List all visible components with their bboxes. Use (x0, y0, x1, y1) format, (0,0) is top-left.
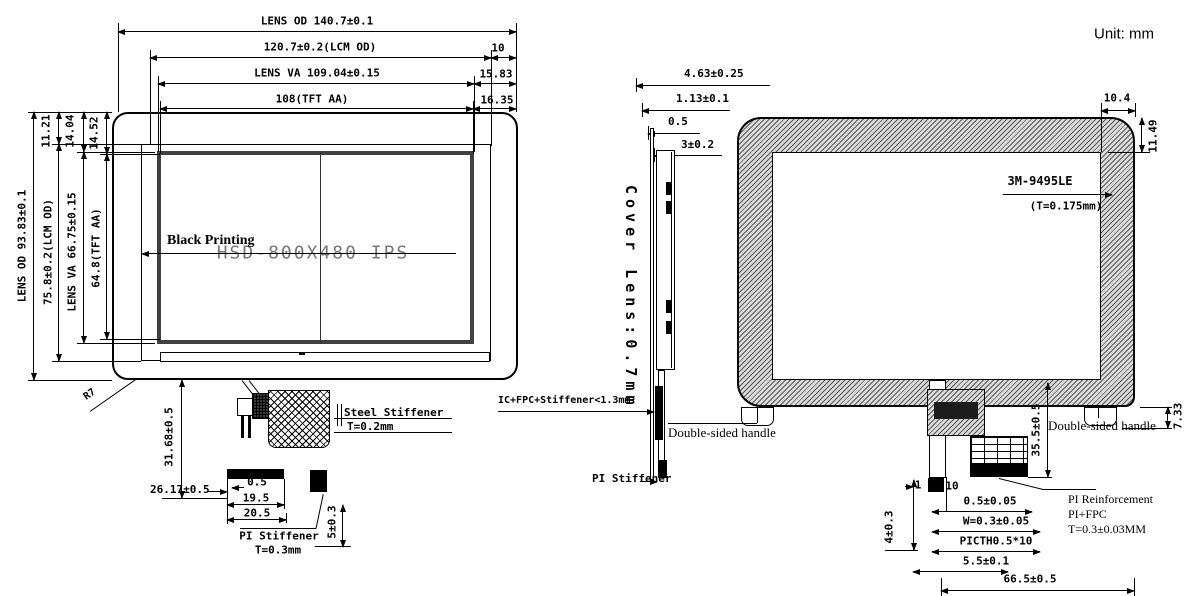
adhesive-label: 3M-9495LE (1007, 175, 1072, 187)
dim-line (83, 112, 84, 152)
extension-line (648, 126, 649, 140)
dim-line (473, 108, 516, 109)
dim-line (33, 112, 34, 380)
front-stiffener-square (310, 470, 327, 492)
dim-05: 0.5 (247, 477, 267, 488)
dim-line (342, 505, 343, 547)
reinforcement-line-3: T=0.3±0.03MM (1068, 522, 1146, 537)
extension-line (1134, 578, 1135, 596)
dim-line (83, 152, 84, 343)
dim-line (491, 57, 516, 58)
black-printing-label: Black Printing (167, 233, 255, 249)
dim-line (118, 31, 516, 32)
dim-lens-od-width: LENS OD 140.7±0.1 (261, 16, 374, 27)
extension-line (150, 50, 151, 144)
steel-stiffener-label: Steel Stiffener (344, 407, 443, 418)
side-ic-block (655, 386, 663, 440)
front-fpc-block (268, 390, 330, 448)
leader-line (1042, 489, 1096, 490)
dim-top-1404: 14.04 (65, 114, 76, 147)
dim-1149: 11.49 (1148, 119, 1159, 152)
dim-w03: W=0.3±0.05 (963, 516, 1029, 527)
dim-463: 4.63±0.25 (684, 68, 744, 79)
extension-line (1122, 428, 1172, 429)
leader-line (1098, 407, 1099, 418)
dim-lcm-od-width: 120.7±0.2(LCM OD) (264, 42, 377, 53)
side-chip (666, 201, 671, 214)
dim-line (181, 380, 182, 498)
label-underline (334, 418, 452, 419)
cover-lens-label: Cover Lens:0.7mm (622, 185, 640, 410)
dim-tft-aa-height: 64.8(TFT AA) (91, 208, 102, 287)
leader-line (1003, 194, 1112, 195)
leader-line (999, 478, 1043, 490)
extension-line (284, 479, 285, 509)
dim-right-1583: 15.83 (479, 69, 512, 80)
rear-stiffener-bar (970, 464, 1028, 477)
dim-leader (208, 491, 227, 492)
extension-line (162, 498, 228, 499)
dim-line (642, 110, 730, 111)
radius-label: R7 (82, 387, 98, 402)
dim-line (474, 83, 516, 84)
dim-665: 66.5±0.5 (1004, 574, 1057, 585)
rear-connector-label-area (934, 402, 978, 419)
dim-2617: 26.17±0.5 (150, 484, 210, 495)
extension-line (473, 101, 474, 154)
dim-line (158, 83, 474, 84)
bracket-line (337, 404, 338, 426)
dim-line (913, 571, 1008, 572)
dim-fpc-length: 31.68±0.5 (164, 407, 175, 467)
extension-line (28, 112, 112, 113)
extension-line (1135, 103, 1136, 117)
dim-4: 4±0.3 (884, 510, 895, 543)
dim-line (913, 480, 914, 550)
dim-0505: 0.5±0.05 (964, 496, 1017, 507)
dim-right-10: 10 (491, 43, 504, 54)
dim-lens-va-height: LENS VA 66.75±0.15 (67, 192, 78, 311)
dim-104: 10.4 (1104, 93, 1131, 104)
dim-355: 35.5±0.5 (1031, 404, 1042, 457)
extension-line (636, 78, 637, 92)
dim-line (648, 133, 700, 134)
leader-line (498, 411, 654, 412)
extension-line (1101, 103, 1102, 152)
extension-line (158, 76, 159, 152)
dim-line (1101, 110, 1135, 111)
dim-line (1141, 118, 1142, 152)
dim-line (1047, 383, 1048, 477)
extension-line (28, 380, 112, 381)
dim-733: 7.33 (1173, 403, 1184, 430)
side-chip (666, 300, 671, 313)
dim-10: 10 (945, 481, 958, 492)
dim-tft-aa-width: 108(TFT AA) (276, 94, 349, 105)
connector-pin (241, 416, 244, 438)
leader-line (640, 481, 657, 482)
bracket-line (341, 404, 342, 426)
connector-pin (248, 416, 251, 438)
extension-line (491, 50, 492, 146)
dim-3: 3±0.2 (681, 139, 714, 150)
pi-stiffener-label: PI Stiffener (239, 531, 318, 542)
extension-line (654, 148, 655, 162)
dim-line (150, 57, 491, 58)
extension-line (1028, 477, 1052, 478)
dim-line (932, 511, 1032, 512)
side-chip (666, 182, 671, 195)
rear-tail-square (928, 478, 944, 492)
extension-line (160, 101, 161, 154)
dim-top-1121: 11.21 (41, 114, 52, 147)
extension-line (1140, 407, 1172, 408)
extension-line (474, 76, 475, 152)
side-chip (666, 321, 671, 334)
dim-line (227, 504, 284, 505)
dim-lens-od-height: LENS OD 93.83±0.1 (17, 190, 28, 303)
extension-line (227, 479, 228, 524)
dim-line (932, 531, 1040, 532)
extension-line (77, 343, 155, 344)
rear-reinforcement-block (970, 436, 1028, 464)
dim-line (106, 112, 107, 154)
leader-line (316, 494, 324, 528)
extension-line (52, 144, 141, 145)
dim-leader (232, 487, 244, 488)
dim-line (636, 85, 770, 86)
reinforcement-line-1: PI Reinforcement (1068, 492, 1153, 507)
drawing-canvas: Unit: mm HSD-800X480 IPS Black Printing … (0, 0, 1200, 596)
handle-right-label: Double-sided handle (1048, 418, 1156, 434)
leader-line (668, 423, 757, 424)
extension-line (941, 578, 942, 596)
dim-pitch: PICTH0.5*10 (960, 536, 1033, 547)
extension-line (286, 513, 287, 523)
extension-line (885, 550, 918, 551)
extension-line (52, 361, 141, 362)
dim-line (1167, 407, 1168, 428)
dim-55: 5.5±0.1 (963, 556, 1009, 567)
dim-line (58, 112, 59, 144)
dim-line (160, 108, 473, 109)
dim-205: 20.5 (244, 508, 271, 519)
extension-line (946, 477, 947, 511)
extension-line (100, 154, 160, 155)
unit-label: Unit: mm (1094, 26, 1154, 43)
extension-line (118, 23, 119, 112)
dim-lcm-od-height: 75.8±0.2(LCM OD) (43, 199, 54, 305)
handle-left-label: Double-sided handle (668, 425, 776, 441)
leader-line (757, 407, 758, 423)
dim-lens-va-width: LENS VA 109.04±0.15 (254, 68, 380, 79)
dim-5: 5±0.3 (327, 505, 338, 538)
dim-line (227, 519, 286, 520)
extension-line (315, 546, 351, 547)
label-underline (334, 432, 452, 433)
extension-line (100, 339, 160, 340)
dim-195: 19.5 (243, 493, 270, 504)
extension-line (516, 23, 517, 112)
dim-line (932, 551, 1040, 552)
black-printing-leader (142, 253, 456, 254)
dim-113: 1.13±0.1 (676, 93, 729, 104)
side-cover-lens (650, 128, 654, 480)
dim-05-side: 0.5 (668, 116, 688, 127)
steel-stiffener-thickness: T=0.2mm (347, 421, 393, 432)
extension-line (77, 152, 155, 153)
dim-line (58, 144, 59, 361)
extension-line (642, 103, 643, 117)
pi-stiffener-thickness: T=0.3mm (255, 545, 301, 556)
dim-line (106, 154, 107, 339)
side-inner-line (671, 152, 672, 368)
front-ledge-tick (299, 352, 305, 355)
adhesive-thickness: (T=0.175mm) (1030, 201, 1103, 212)
pi-stiffener-side-label: PI Stiffener (592, 473, 671, 484)
dim-right-1635: 16.35 (480, 95, 513, 106)
front-bottom-ledge (160, 352, 490, 362)
reinforcement-line-2: PI+FPC (1068, 507, 1107, 522)
extension-line (1108, 152, 1150, 153)
dim-line (941, 590, 1134, 591)
stack-label: IC+FPC+Stiffener<1.3mm (498, 396, 630, 406)
